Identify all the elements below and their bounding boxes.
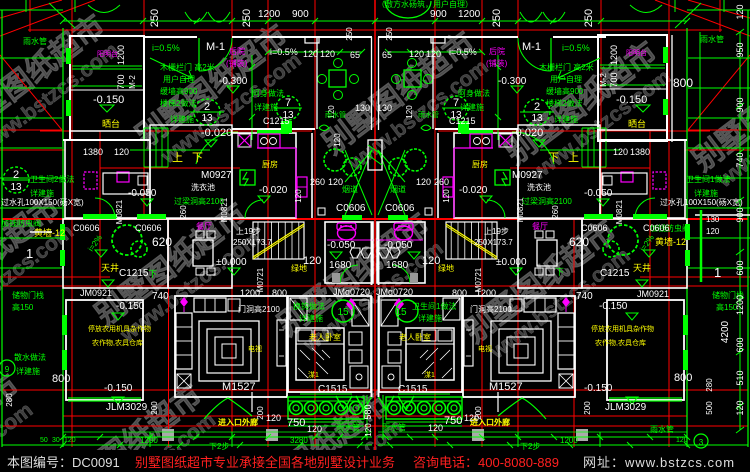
svg-text:740: 740	[735, 152, 745, 167]
svg-text:260: 260	[310, 177, 325, 187]
svg-text:C1215: C1215	[449, 116, 476, 126]
svg-text:120: 120	[676, 437, 688, 444]
svg-text:13: 13	[531, 113, 543, 124]
svg-text:绿地: 绿地	[438, 263, 454, 273]
svg-text:120: 120	[307, 424, 322, 434]
svg-text:1200: 1200	[240, 288, 260, 298]
svg-text:900: 900	[735, 97, 745, 112]
svg-text:雨水管: 雨水管	[325, 110, 346, 119]
svg-text:天井: 天井	[633, 262, 651, 273]
svg-text:停放农用机具杂作物: 停放农用机具杂作物	[88, 324, 151, 333]
svg-text:50: 50	[40, 437, 48, 444]
svg-text:1680: 1680	[329, 260, 352, 271]
svg-text:门洞高2100: 门洞高2100	[238, 304, 280, 314]
svg-text:3: 3	[699, 438, 704, 447]
svg-text:800: 800	[272, 288, 287, 298]
svg-text:下: 下	[555, 267, 564, 277]
svg-text:下: 下	[548, 152, 559, 164]
svg-text:30: 30	[52, 437, 60, 444]
svg-text:120: 120	[416, 177, 431, 187]
svg-text:250: 250	[491, 9, 503, 27]
svg-text:上19步: 上19步	[236, 227, 261, 236]
svg-text:200: 200	[583, 401, 592, 415]
svg-text:农作物,农具仓库: 农作物,农具仓库	[92, 338, 143, 347]
svg-text:上: 上	[568, 151, 579, 164]
svg-text:-0.150: -0.150	[599, 301, 628, 312]
svg-text:烟道: 烟道	[342, 184, 358, 194]
svg-text:JM0921: JM0921	[80, 288, 112, 298]
svg-text:-0.020: -0.020	[512, 127, 543, 139]
svg-text:120: 120	[303, 49, 318, 59]
svg-text:800: 800	[452, 288, 467, 298]
svg-text:-0.020: -0.020	[201, 127, 232, 139]
svg-text:-0.150: -0.150	[104, 383, 133, 394]
svg-text:15: 15	[395, 307, 407, 318]
svg-text:下: 下	[148, 269, 157, 279]
svg-text:200: 200	[474, 406, 483, 420]
svg-text:750: 750	[287, 417, 305, 429]
svg-text:-0.050: -0.050	[128, 188, 157, 199]
svg-text:1200: 1200	[560, 436, 578, 445]
svg-text:120: 120	[613, 147, 628, 157]
svg-text:散水做法: 散水做法	[14, 352, 46, 362]
svg-text:C1515: C1515	[318, 384, 348, 395]
svg-text:7: 7	[285, 97, 291, 109]
svg-text:120: 120	[442, 189, 451, 203]
svg-text:咨询电话：400-8080-889: 咨询电话：400-8080-889	[413, 455, 559, 470]
svg-text:M0927: M0927	[201, 170, 232, 181]
svg-text:雨水管: 雨水管	[23, 36, 47, 46]
svg-text:卫生间2做法: 卫生间2做法	[30, 174, 74, 184]
svg-text:阳明台: 阳明台	[626, 48, 647, 57]
svg-text:C1215: C1215	[119, 268, 149, 279]
svg-text:15: 15	[337, 307, 349, 318]
svg-text:过梁洞高2100: 过梁洞高2100	[522, 196, 572, 206]
svg-text:-0.150: -0.150	[584, 383, 613, 394]
svg-text:280: 280	[705, 378, 714, 392]
svg-text:老人卧室: 老人卧室	[399, 332, 431, 342]
svg-text:-0.020: -0.020	[459, 185, 488, 196]
svg-text:木栅栏门 高2米: 木栅栏门 高2米	[539, 62, 594, 72]
svg-text:M1527: M1527	[222, 381, 256, 393]
svg-text:本图编号：DC0091: 本图编号：DC0091	[7, 455, 120, 470]
svg-text:M0821: M0821	[615, 199, 624, 224]
svg-text:C0606: C0606	[385, 203, 415, 214]
svg-text:1200: 1200	[458, 9, 481, 20]
svg-text:120: 120	[735, 4, 745, 19]
svg-text:C0606: C0606	[73, 223, 100, 233]
svg-text:260: 260	[179, 205, 188, 219]
svg-text:120: 120	[409, 49, 424, 59]
svg-text:详建施: 详建施	[30, 188, 54, 198]
svg-text:缓墙高900: 缓墙高900	[160, 86, 198, 96]
svg-text:雨水管: 雨水管	[650, 424, 674, 434]
svg-text:C1515: C1515	[398, 384, 428, 395]
svg-text:-0.300: -0.300	[498, 76, 527, 87]
svg-text:M0821: M0821	[115, 199, 124, 224]
svg-text:2: 2	[534, 101, 540, 113]
svg-text:厨房: 厨房	[472, 159, 488, 169]
svg-text:M-2: M-2	[128, 75, 137, 89]
svg-text:2: 2	[13, 169, 19, 181]
svg-text:580: 580	[363, 404, 373, 419]
svg-text:绿地: 绿地	[291, 263, 307, 273]
svg-text:800: 800	[674, 372, 692, 384]
svg-text:65: 65	[350, 50, 360, 60]
svg-text:1200: 1200	[609, 45, 619, 65]
svg-text:250X173.7: 250X173.7	[233, 238, 272, 247]
svg-text:M-1: M-1	[522, 41, 541, 53]
svg-text:阿身做法: 阿身做法	[252, 88, 284, 98]
svg-text:120: 120	[266, 413, 281, 423]
svg-text:120: 120	[64, 437, 76, 444]
svg-text:800: 800	[52, 373, 70, 385]
svg-text:250: 250	[583, 9, 595, 27]
svg-text:700: 700	[609, 72, 619, 87]
svg-text:130: 130	[706, 215, 720, 224]
svg-text:1: 1	[26, 246, 33, 261]
svg-text:农作物,农具仓库: 农作物,农具仓库	[595, 338, 646, 347]
svg-text:阳明台: 阳明台	[97, 49, 118, 58]
svg-text:740: 740	[152, 291, 169, 302]
svg-text:3280: 3280	[290, 436, 308, 445]
svg-text:120: 120	[428, 423, 443, 433]
svg-text:950: 950	[735, 42, 745, 57]
svg-text:i=0.5%: i=0.5%	[449, 47, 477, 57]
svg-text:过水孔100X150(砀X宽): 过水孔100X150(砀X宽)	[660, 197, 743, 207]
svg-text:上: 上	[172, 151, 183, 164]
svg-text:JMg0720: JMg0720	[333, 287, 370, 297]
svg-text:i=0.5%: i=0.5%	[152, 43, 180, 53]
svg-text:120: 120	[405, 105, 414, 119]
svg-text:M1527: M1527	[489, 381, 523, 393]
svg-text:网址：www.bstzcs.com: 网址：www.bstzcs.com	[583, 455, 735, 470]
svg-text:620: 620	[569, 235, 589, 249]
svg-text:250: 250	[345, 27, 354, 41]
svg-text:（敷方水砀筑，用户自理）: （敷方水砀筑，用户自理）	[377, 0, 473, 9]
svg-text:2: 2	[204, 101, 210, 113]
svg-text:餐厅: 餐厅	[196, 222, 212, 231]
svg-text:±0.000: ±0.000	[216, 257, 247, 268]
svg-text:-0.020: -0.020	[259, 185, 288, 196]
svg-text:1200: 1200	[476, 288, 496, 298]
svg-text:M0927: M0927	[512, 170, 543, 181]
svg-text:7: 7	[453, 97, 459, 109]
svg-text:120: 120	[735, 400, 745, 415]
svg-text:详建施: 详建施	[418, 313, 442, 323]
svg-text:i=0.5%: i=0.5%	[270, 47, 298, 57]
svg-text:M-1: M-1	[206, 41, 225, 53]
svg-text:-0.050: -0.050	[384, 240, 413, 251]
svg-text:±0.000: ±0.000	[496, 257, 527, 268]
svg-text:电视: 电视	[478, 344, 492, 353]
svg-text:9: 9	[5, 365, 10, 374]
svg-text:过水孔100X150(砀X宽): 过水孔100X150(砀X宽)	[1, 197, 84, 207]
svg-text:200: 200	[150, 401, 159, 415]
svg-text:楼梯2做法: 楼梯2做法	[160, 98, 196, 108]
svg-text:1200: 1200	[258, 9, 281, 20]
svg-text:C1215: C1215	[600, 268, 630, 279]
svg-text:晒台: 晒台	[102, 118, 120, 129]
svg-text:后院: 后院	[229, 46, 245, 56]
svg-text:250: 250	[149, 9, 161, 27]
svg-text:120: 120	[294, 189, 303, 203]
svg-text:C0606: C0606	[135, 223, 162, 233]
svg-text:黄墙-12: 黄墙-12	[655, 236, 686, 247]
svg-text:250X173.7: 250X173.7	[474, 238, 513, 247]
svg-text:C0606: C0606	[581, 223, 608, 233]
svg-text:缓墙高900: 缓墙高900	[546, 86, 584, 96]
svg-text:120: 120	[364, 423, 373, 437]
svg-text:900: 900	[292, 9, 309, 20]
svg-text:用户自理: 用户自理	[163, 74, 195, 84]
svg-text:餐厅: 餐厅	[532, 222, 548, 231]
svg-text:-0.050: -0.050	[327, 240, 356, 251]
svg-text:4200: 4200	[720, 320, 731, 343]
svg-text:250: 250	[241, 9, 253, 27]
svg-text:620: 620	[152, 235, 172, 249]
svg-text:C0606: C0606	[336, 203, 366, 214]
svg-text:(铺装): (铺装)	[486, 58, 508, 68]
svg-text:下2步: 下2步	[209, 442, 229, 451]
svg-text:进入口外廊: 进入口外廊	[218, 417, 258, 427]
svg-text:900: 900	[430, 9, 447, 20]
svg-text:260: 260	[551, 205, 560, 219]
svg-text:120: 120	[320, 49, 335, 59]
svg-text:烟道: 烟道	[390, 184, 406, 194]
svg-text:120: 120	[706, 227, 720, 236]
svg-text:过梁洞高2100: 过梁洞高2100	[174, 196, 224, 206]
svg-text:900: 900	[735, 207, 745, 222]
svg-text:天井: 天井	[101, 262, 119, 273]
svg-text:门洞高2100: 门洞高2100	[470, 304, 512, 314]
svg-text:详建施: 详建施	[170, 114, 194, 124]
svg-text:湈1: 湈1	[424, 370, 435, 379]
svg-text:高150: 高150	[12, 302, 34, 312]
svg-text:-0.300: -0.300	[219, 76, 248, 87]
svg-text:500: 500	[705, 401, 714, 415]
svg-text:C0606: C0606	[643, 223, 670, 233]
svg-text:老人卧室: 老人卧室	[309, 332, 341, 342]
svg-text:280: 280	[5, 393, 14, 407]
svg-text:1: 1	[714, 265, 721, 280]
svg-text:13: 13	[10, 182, 22, 193]
svg-text:C1215: C1215	[263, 116, 290, 126]
svg-text:停放农用机具杂作物: 停放农用机具杂作物	[591, 324, 654, 333]
svg-text:750: 750	[444, 415, 462, 427]
svg-text:13: 13	[201, 113, 213, 124]
svg-text:雨水管: 雨水管	[336, 422, 360, 432]
svg-text:下2步: 下2步	[520, 442, 540, 451]
svg-text:换钩做法: 换钩做法	[293, 301, 325, 311]
svg-text:详建施: 详建施	[694, 188, 718, 198]
svg-text:上19步: 上19步	[484, 227, 509, 236]
svg-text:卫生间1做法: 卫生间1做法	[412, 301, 456, 311]
svg-text:详建施: 详建施	[254, 102, 278, 112]
svg-text:700: 700	[116, 74, 126, 89]
svg-text:1680: 1680	[386, 260, 409, 271]
svg-text:1380: 1380	[630, 147, 650, 157]
svg-text:800: 800	[673, 76, 693, 90]
svg-text:120: 120	[328, 177, 343, 187]
svg-text:洗衣池: 洗衣池	[527, 182, 551, 192]
svg-text:楼梯2做法: 楼梯2做法	[546, 98, 582, 108]
svg-text:600: 600	[735, 337, 745, 352]
svg-text:后院: 后院	[489, 46, 505, 56]
svg-text:(铺装): (铺装)	[226, 58, 248, 68]
svg-text:250: 250	[385, 27, 394, 41]
svg-text:用户自理: 用户自理	[550, 74, 582, 84]
svg-text:-0.150: -0.150	[116, 301, 145, 312]
svg-text:JLM3029: JLM3029	[605, 402, 647, 413]
svg-text:200: 200	[256, 406, 265, 420]
svg-text:260: 260	[434, 177, 449, 187]
svg-text:阿身做法: 阿身做法	[458, 88, 490, 98]
svg-text:M-2: M-2	[599, 73, 608, 87]
svg-text:加钱防虫阀: 加钱防虫阀	[1, 218, 41, 228]
svg-text:JLM3029: JLM3029	[106, 402, 148, 413]
svg-text:1200: 1200	[140, 436, 158, 445]
svg-text:600: 600	[735, 260, 745, 275]
svg-text:详建施: 详建施	[16, 366, 40, 376]
svg-text:JM0921: JM0921	[637, 289, 669, 299]
svg-text:木栅栏门 高2米: 木栅栏门 高2米	[160, 62, 215, 72]
svg-text:-0.050: -0.050	[584, 188, 613, 199]
svg-text:别墅图纸超市专业承接全国各地别墅设计业务: 别墅图纸超市专业承接全国各地别墅设计业务	[135, 455, 395, 470]
svg-text:雨水管: 雨水管	[382, 422, 406, 432]
svg-text:详建施: 详建施	[554, 114, 578, 124]
svg-text:湈1: 湈1	[308, 370, 319, 379]
svg-text:1380: 1380	[83, 147, 103, 157]
svg-text:洗衣池: 洗衣池	[191, 182, 215, 192]
svg-text:下: 下	[192, 152, 203, 164]
svg-text:i=0.5%: i=0.5%	[562, 43, 590, 53]
svg-text:详建施: 详建施	[460, 102, 484, 112]
svg-text:120: 120	[114, 147, 129, 157]
svg-text:电视: 电视	[248, 344, 262, 353]
svg-text:雨水管: 雨水管	[700, 34, 724, 44]
svg-text:卫生间1做法: 卫生间1做法	[686, 174, 730, 184]
svg-text:雨水管: 雨水管	[418, 110, 439, 119]
svg-text:-0.150: -0.150	[93, 94, 124, 106]
svg-text:740: 740	[576, 291, 593, 302]
svg-text:65: 65	[382, 50, 392, 60]
svg-text:晒台: 晒台	[628, 118, 646, 129]
svg-text:详建施: 详建施	[299, 313, 323, 323]
svg-text:510: 510	[735, 370, 745, 385]
svg-text:储物门栈: 储物门栈	[12, 290, 44, 300]
svg-text:120: 120	[333, 133, 342, 147]
svg-text:-0.150: -0.150	[616, 94, 647, 106]
svg-text:130: 130	[355, 103, 370, 113]
svg-text:130: 130	[377, 103, 392, 113]
svg-text:120: 120	[426, 49, 441, 59]
svg-text:1200: 1200	[735, 295, 745, 315]
svg-text:厨房: 厨房	[262, 159, 278, 169]
svg-text:JMg0720: JMg0720	[376, 287, 413, 297]
